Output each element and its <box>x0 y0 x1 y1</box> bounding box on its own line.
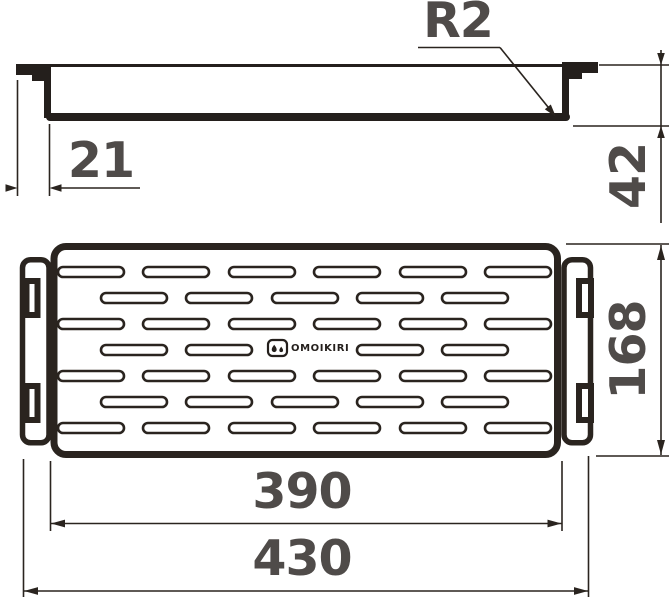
outer-width-dim-label: 430 <box>232 534 372 583</box>
edge-offset-dim-label: 21 <box>66 136 136 185</box>
inner-width-dim-label: 390 <box>232 467 372 516</box>
drain-slot <box>400 371 466 381</box>
drain-slot <box>143 319 209 329</box>
water-drops-icon <box>268 340 287 356</box>
rim-line <box>44 64 564 67</box>
drain-slot <box>229 371 295 381</box>
right-wall <box>562 62 569 118</box>
drain-slot <box>357 397 423 407</box>
right-clip-bottom <box>579 386 591 420</box>
drain-slot <box>314 371 380 381</box>
drain-slot <box>229 267 295 277</box>
drain-slot <box>357 293 423 303</box>
drain-slot <box>314 423 380 433</box>
drain-slot <box>272 293 338 303</box>
drain-slot <box>442 293 508 303</box>
radius-dim-label: R2 <box>416 0 500 45</box>
drain-slot <box>357 345 423 355</box>
drain-slot <box>314 267 380 277</box>
drain-slot <box>442 397 508 407</box>
right-clip-top <box>579 281 591 315</box>
drain-slot <box>143 423 209 433</box>
technical-drawing-canvas: R2 21 42 168 390 430 OMOIKIRI <box>0 0 671 600</box>
drain-slot <box>58 319 124 329</box>
height-dim-label: 42 <box>604 136 654 216</box>
brand-logo-text: OMOIKIRI <box>291 342 347 355</box>
drain-slot <box>485 267 551 277</box>
drain-slot <box>400 319 466 329</box>
left-clip-bottom <box>27 386 38 420</box>
drain-slot <box>485 423 551 433</box>
drain-slot <box>186 397 252 407</box>
drain-slot <box>485 319 551 329</box>
drain-slot <box>485 371 551 381</box>
drain-slot <box>101 345 167 355</box>
left-clip-top <box>27 281 38 315</box>
drain-slot <box>58 423 124 433</box>
drain-slot <box>58 267 124 277</box>
drain-slot <box>58 371 124 381</box>
tray-base <box>46 113 570 121</box>
drain-slot <box>400 423 466 433</box>
side-profile-view <box>16 62 598 121</box>
drain-slot <box>101 293 167 303</box>
drain-slot <box>229 319 295 329</box>
drain-slot <box>272 397 338 407</box>
drain-slot <box>143 267 209 277</box>
left-wall <box>44 64 51 118</box>
drain-slot <box>101 397 167 407</box>
drain-slot <box>229 423 295 433</box>
drain-slot <box>186 345 252 355</box>
left-hook-profile <box>16 64 44 81</box>
radius-leader <box>418 48 556 118</box>
drain-slot <box>186 293 252 303</box>
depth-dim-label: 168 <box>604 285 654 415</box>
right-hook-profile <box>569 62 598 79</box>
drain-slot <box>442 345 508 355</box>
drain-slot <box>400 267 466 277</box>
drain-slot <box>314 319 380 329</box>
drain-slot <box>143 371 209 381</box>
